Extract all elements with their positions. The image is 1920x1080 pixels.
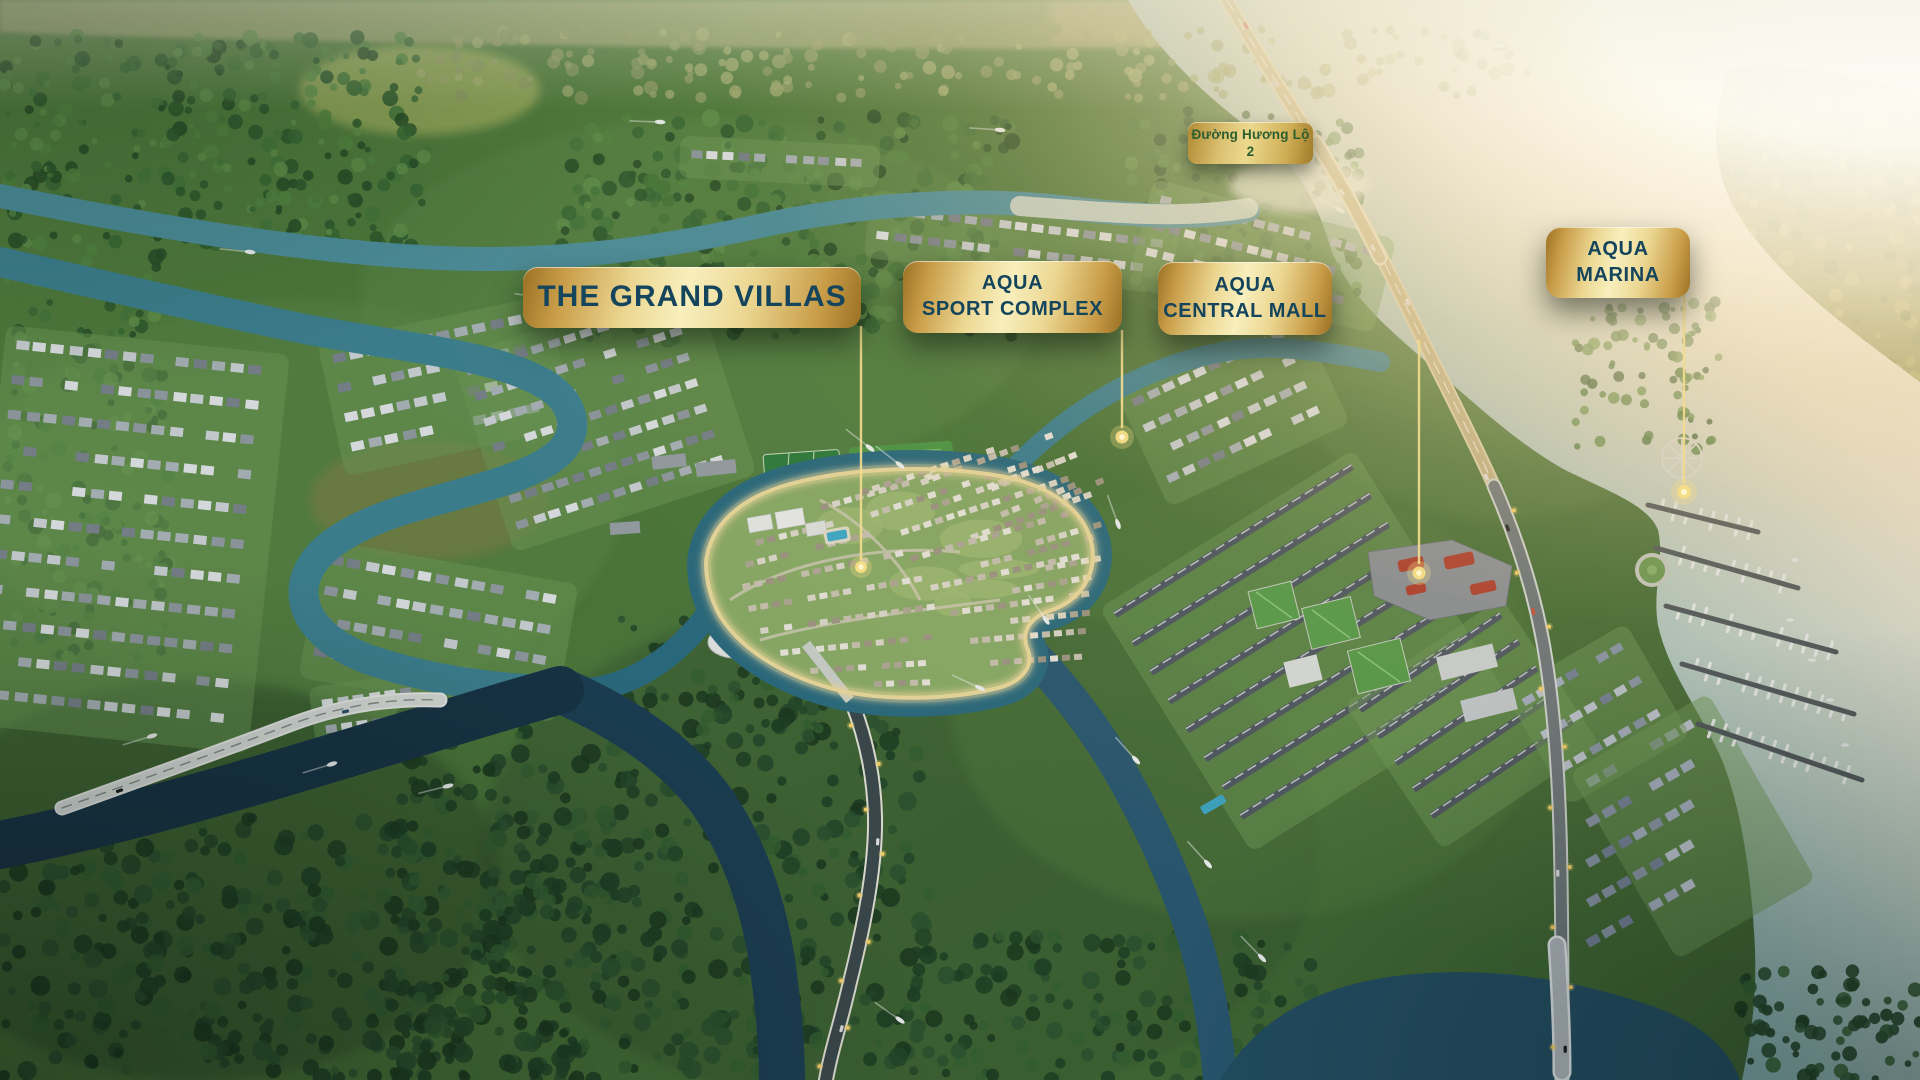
marker-dot-marina[interactable]: [1671, 479, 1697, 505]
road-label-text: Đường Hương Lộ 2: [1188, 126, 1313, 161]
marker-dot-central-mall[interactable]: [1407, 561, 1431, 585]
callout-central-mall[interactable]: AQUA CENTRAL MALL: [1158, 262, 1332, 335]
callout-line2: MARINA: [1576, 263, 1660, 289]
callout-label: THE GRAND VILLAS: [537, 278, 846, 316]
callout-line2: CENTRAL MALL: [1163, 299, 1326, 325]
callout-line1: AQUA: [1214, 273, 1275, 299]
vignette: [0, 0, 1920, 1080]
masterplan-map: THE GRAND VILLAS AQUA SPORT COMPLEX AQUA…: [0, 0, 1920, 1080]
aerial-scene: [0, 0, 1920, 1080]
callout-marina[interactable]: AQUA MARINA: [1546, 227, 1690, 298]
callout-grand-villas[interactable]: THE GRAND VILLAS: [523, 267, 861, 328]
road-label-huong-lo-2: Đường Hương Lộ 2: [1188, 122, 1313, 164]
callout-sport-complex[interactable]: AQUA SPORT COMPLEX: [903, 261, 1122, 333]
callout-line2: SPORT COMPLEX: [922, 297, 1103, 323]
marker-dot-sport-complex[interactable]: [1110, 425, 1134, 449]
callout-line1: AQUA: [1587, 237, 1648, 263]
callout-line1: AQUA: [982, 271, 1043, 297]
marker-dot-grand-villas[interactable]: [850, 556, 872, 578]
